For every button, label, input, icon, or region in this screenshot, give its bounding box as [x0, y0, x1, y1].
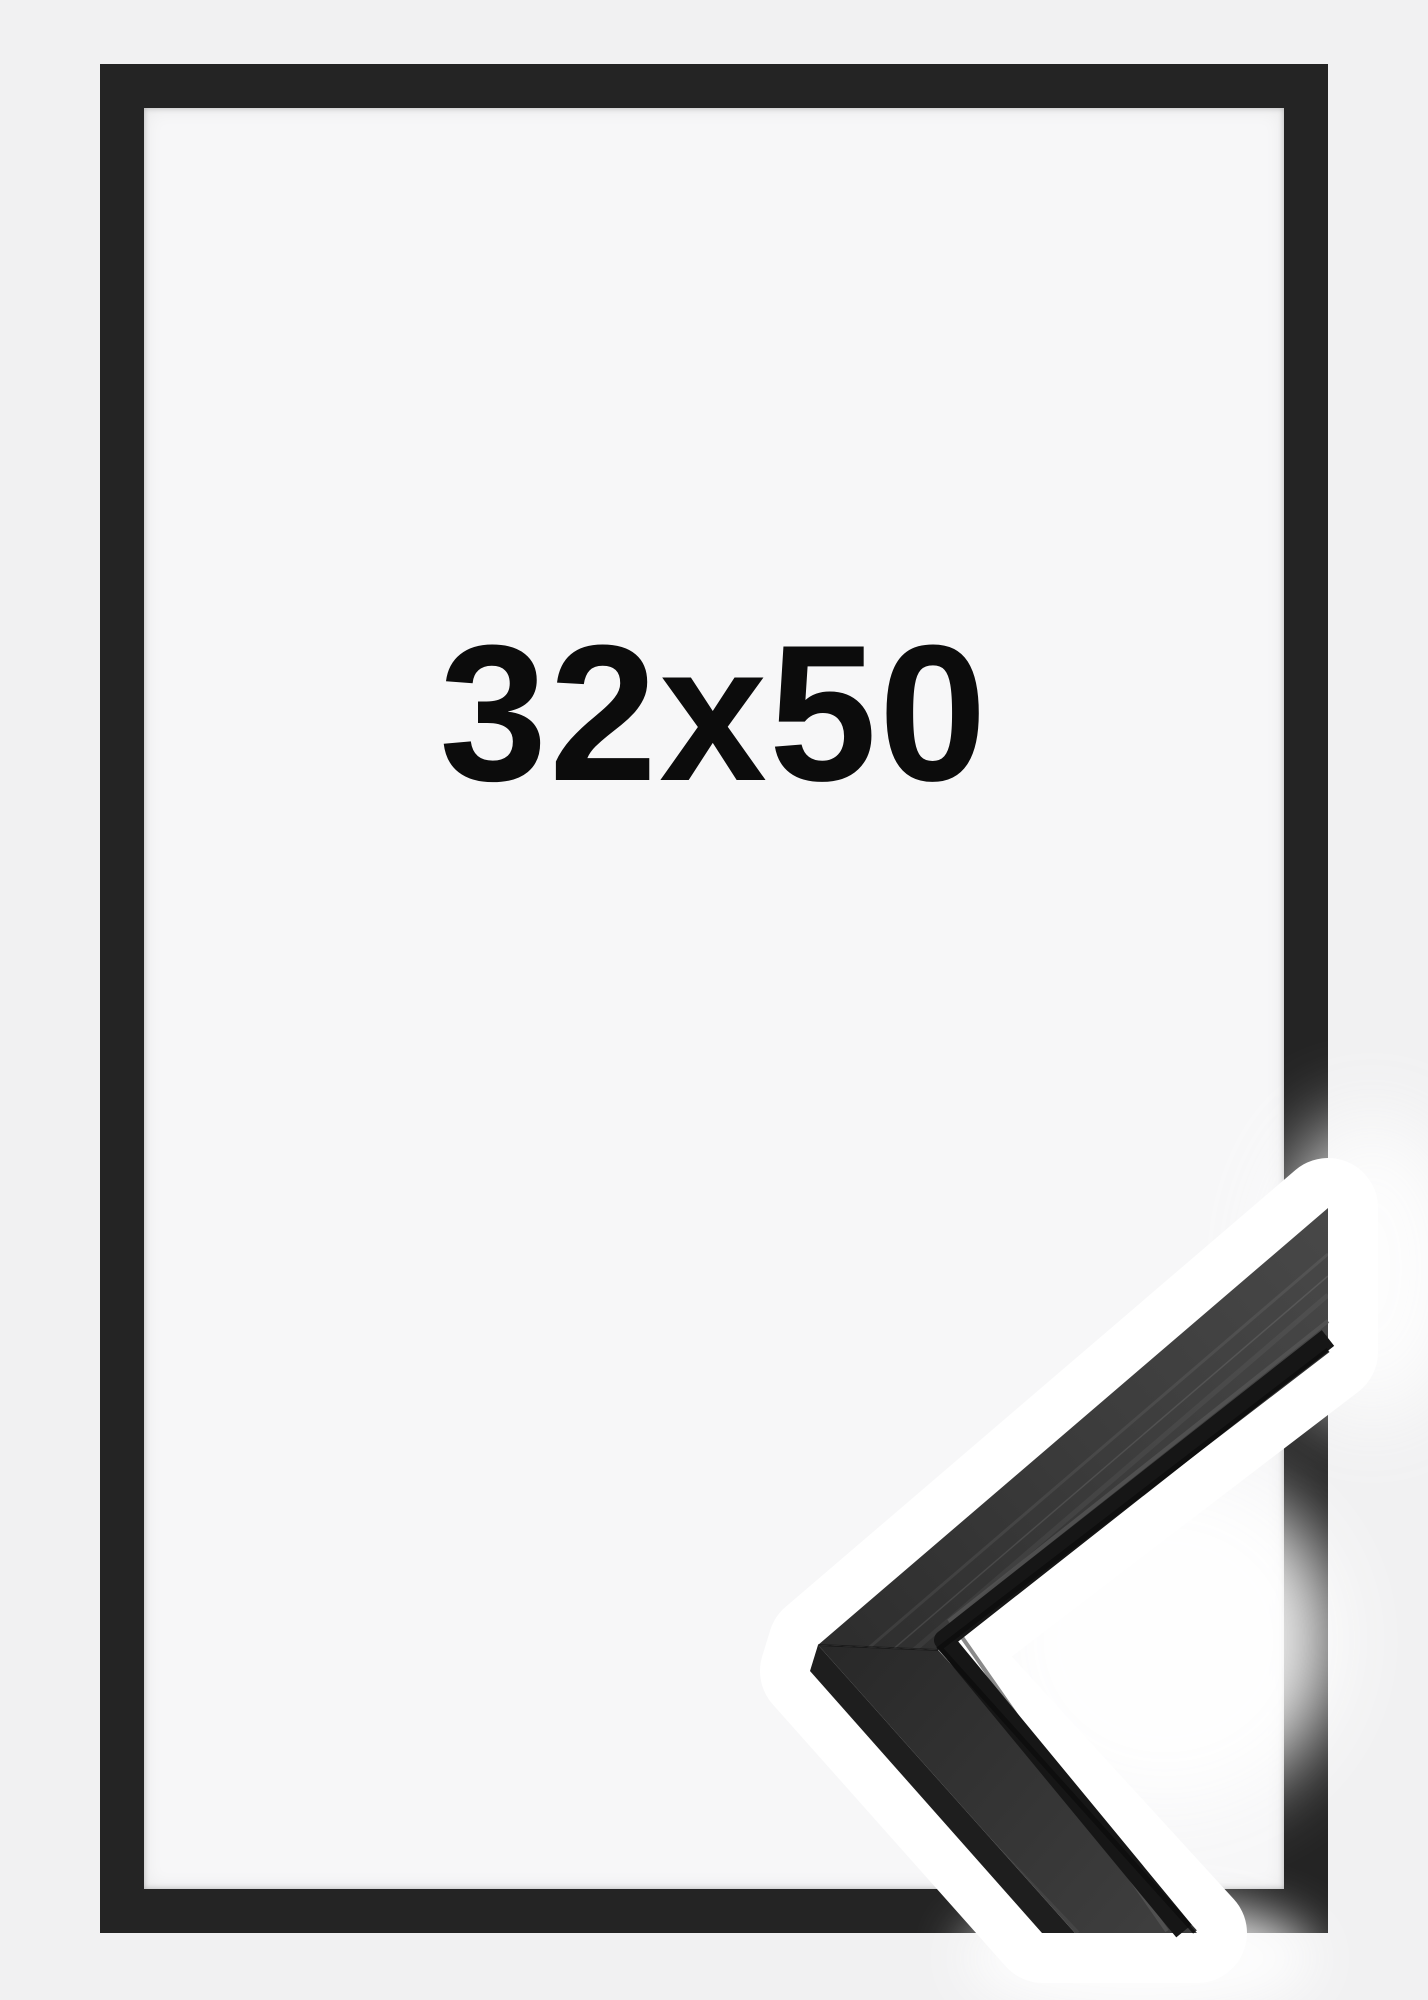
size-label: 32x50 [439, 617, 988, 811]
product-image: 32x50 [0, 0, 1428, 2000]
frame-mockup [100, 64, 1328, 1933]
